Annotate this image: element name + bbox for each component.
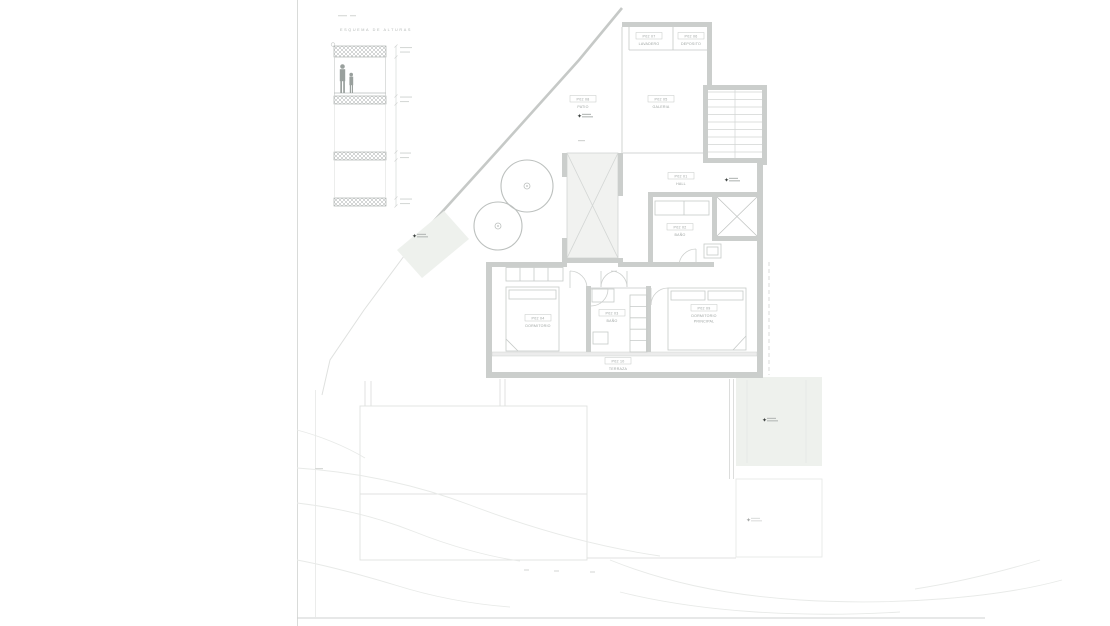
green-area-parallelogram [397, 211, 469, 278]
room-code-galeria: P02 05 [655, 98, 668, 102]
room-label-bano: P02 03 BAÑO [599, 310, 625, 324]
room-label-deposito: P02 06 DEPOSITO [678, 33, 704, 47]
sheet-borders [297, 0, 985, 626]
tree-2 [474, 202, 522, 250]
facade-window-band [492, 352, 757, 356]
room-name-terraza: TERRAZA [609, 367, 628, 371]
wc-fixture [593, 332, 608, 344]
logo-star-icon: ✦ [412, 233, 417, 240]
plan-svg: ESQUEMA DE ALTURAS [0, 0, 1110, 626]
room-name-bano-superior: BAÑO [675, 232, 686, 237]
height-scheme-detail: ESQUEMA DE ALTURAS [331, 15, 412, 208]
height-scheme-title: ESQUEMA DE ALTURAS [340, 28, 412, 32]
room-label-patio: P02 08 PATIO [570, 96, 596, 142]
room-label-galeria: P02 05 GALERIA [648, 96, 674, 110]
human-figure-adult [340, 64, 345, 93]
logo-star-icon: ✦ [762, 417, 767, 424]
room-label-dormitorio: P02 04 DORMITORIO [525, 315, 551, 329]
room-code-bano-superior: P02 02 [674, 226, 687, 230]
room-label-terraza: P02 10 TERRAZA [605, 358, 631, 372]
room-name-lavadero: LAVADERO [639, 42, 660, 46]
closet-column [630, 295, 647, 352]
staircase [708, 90, 762, 158]
room-name-dormitorio: DORMITORIO [525, 324, 550, 328]
green-area-right [736, 377, 822, 466]
room-name-hall: HALL [676, 182, 686, 186]
logo-star-icon: ✦ [724, 177, 729, 184]
hall-cabinet [704, 244, 721, 258]
room-code-bano: P02 03 [606, 312, 619, 316]
logo-star-icon: ✦ [577, 113, 582, 120]
room-name-dormitorio-principal-1: DORMITORIO [691, 314, 716, 318]
furniture [506, 201, 746, 352]
terrain-contours [297, 430, 1062, 614]
void-skylight [567, 153, 618, 258]
slab-floor-2 [334, 152, 386, 160]
room-name-galeria: GALERIA [653, 105, 670, 109]
drawing-sheet: ESQUEMA DE ALTURAS [0, 0, 1110, 626]
survey-ticks [524, 570, 595, 572]
slab-floor-3 [334, 198, 386, 206]
logo-mark-hall: ✦ [724, 177, 740, 184]
dimension-line [395, 45, 398, 208]
room-label-hall: P02 01 HALL [668, 173, 694, 187]
room-name-deposito: DEPOSITO [681, 42, 701, 46]
room-label-lavadero: P02 07 LAVADERO [636, 33, 662, 47]
room-code-dormitorio-principal: P02 09 [698, 307, 711, 311]
room-label-bano-superior: P02 02 BAÑO [667, 224, 693, 238]
room-code-dormitorio: P02 04 [532, 317, 545, 321]
room-labels: P02 07 LAVADERO P02 06 DEPOSITO P02 08 P… [525, 33, 717, 372]
elevator-shaft [717, 197, 757, 236]
detail-annotations [400, 47, 412, 204]
logo-star-icon: ✦ [746, 517, 751, 524]
human-figure-child [349, 73, 353, 93]
site-features [297, 8, 1062, 614]
logo-mark-patio: ✦ [577, 113, 593, 120]
wardrobe [506, 268, 563, 282]
room-code-lavadero: P02 07 [643, 35, 656, 39]
boundary-line-continuation [322, 248, 410, 395]
slab-floor-1 [334, 96, 386, 104]
room-name-bano: BAÑO [607, 318, 618, 323]
logo-mark-lower-terrace: ✦ [746, 517, 762, 524]
slab-roof [334, 46, 386, 57]
room-name-dormitorio-principal-2: PRINCIPAL [694, 320, 715, 324]
room-code-hall: P02 01 [675, 175, 688, 179]
room-code-deposito: P02 06 [685, 35, 698, 39]
room-name-patio: PATIO [577, 105, 588, 109]
shower-tray [592, 289, 614, 302]
room-code-patio: P02 08 [577, 98, 590, 102]
room-label-dormitorio-principal: P02 09 DORMITORIO PRINCIPAL [691, 305, 717, 324]
room-code-terraza: P02 10 [612, 360, 625, 364]
bath-vanity [655, 201, 709, 215]
site-elevation-note [315, 468, 323, 469]
